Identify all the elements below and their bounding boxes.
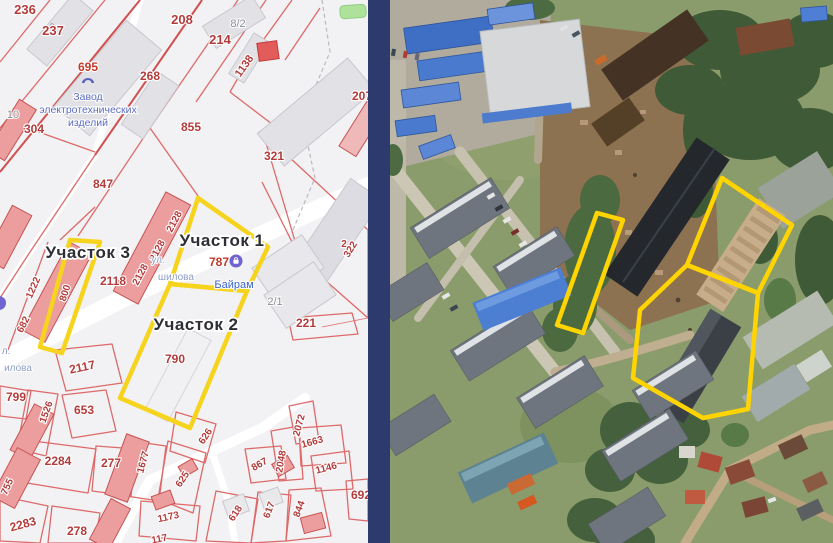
parcel-number-label: 2284 — [45, 454, 72, 468]
panel-divider — [368, 0, 390, 543]
parcel-number-label: 236 — [14, 2, 36, 17]
street-name-label: л. — [2, 346, 11, 357]
parcel-number-label: 278 — [67, 524, 87, 538]
cadastral-map: 2362372082148/21138268855304103212078472… — [0, 0, 368, 543]
parcel-number-label: 221 — [296, 316, 316, 330]
bayram-name-label: Байрам — [214, 279, 253, 291]
green-area — [340, 4, 367, 19]
parcel-number-label: 790 — [165, 352, 185, 366]
parcel-number-label: 268 — [140, 69, 160, 83]
parcel-number-label: 653 — [74, 403, 94, 417]
factory-name-label: Завод — [73, 91, 102, 103]
parcel-number-label: 304 — [24, 122, 44, 136]
parcel-number-label: 321 — [264, 149, 284, 163]
parcel-number-label: 799 — [6, 390, 26, 404]
cadastral-map-panel: 2362372082148/21138268855304103212078472… — [0, 0, 368, 543]
satellite-panel — [390, 0, 833, 543]
plot-label-1: Участок 3 — [45, 243, 130, 262]
bayram-store-icon — [233, 260, 238, 264]
plot-label-3: Участок 2 — [153, 315, 238, 334]
comparison-image: 2362372082148/21138268855304103212078472… — [0, 0, 833, 543]
parcel-number-label: 8/2 — [230, 18, 245, 30]
bayram-parcel-number: 787 — [209, 255, 229, 269]
street-name-label: шилова — [158, 272, 194, 283]
factory-parcel-number: 695 — [78, 60, 98, 74]
parcel-number-label: 237 — [42, 23, 64, 38]
parcel-number-label: 2118 — [100, 274, 126, 288]
parcel-number-label: 2/1 — [267, 296, 282, 308]
street-name-label: илова — [4, 363, 32, 374]
parcel-number-label: 855 — [181, 120, 201, 134]
factory-name-label: электротехнических — [39, 104, 137, 116]
parcel-number-label: 847 — [93, 177, 113, 191]
parcel-number-label: 10 — [7, 109, 19, 121]
parcel-number-label: 277 — [101, 456, 121, 470]
parcel-number-label: 214 — [209, 32, 231, 47]
parcel-number-label: 692 — [351, 488, 368, 502]
street-name-label: ул. — [151, 255, 164, 266]
satellite-image — [390, 0, 833, 543]
factory-name-label: изделий — [68, 117, 108, 129]
parcel-number-label: 208 — [171, 12, 193, 27]
parcel-number-label: 207 — [352, 89, 368, 103]
plot-label-2: Участок 1 — [179, 231, 264, 250]
